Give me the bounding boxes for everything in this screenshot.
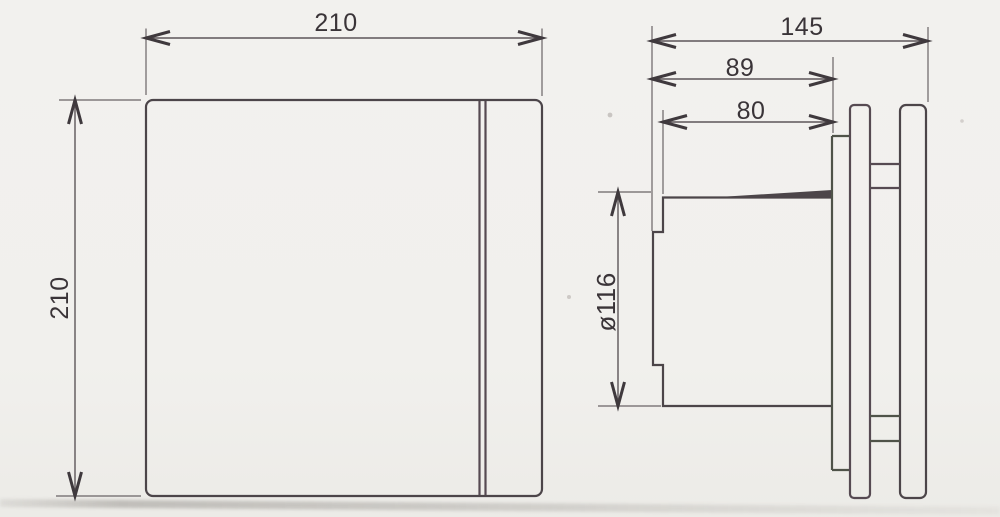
mounting-plate-outline	[850, 105, 870, 498]
front-width-label: 210	[314, 9, 357, 37]
scan-speck	[567, 295, 571, 299]
front-height-label: 210	[46, 276, 74, 319]
side-view-dimensions: 145 89 80 ø116	[591, 13, 928, 406]
fan-dimension-drawing: 210 210 145 89 80 ø116	[0, 0, 1000, 517]
spigot-length-label: 80	[737, 97, 766, 125]
front-panel-outline	[146, 100, 542, 496]
spigot-outline	[653, 198, 832, 407]
front-cover-side-outline	[900, 105, 926, 498]
spigot-taper-wedge	[719, 190, 832, 198]
body-depth-label: 89	[726, 54, 755, 82]
scan-specks	[567, 113, 964, 299]
total-depth-label: 145	[780, 13, 823, 41]
spigot-diameter-label: ø116	[591, 272, 621, 331]
body-back-edge	[832, 136, 850, 470]
dimension-drawing-canvas: 210 210 145 89 80 ø116	[0, 0, 1000, 517]
cover-clip-bottom	[870, 416, 900, 441]
scan-speck	[608, 113, 613, 118]
scan-speck	[960, 119, 964, 123]
side-view	[653, 105, 926, 498]
front-view	[146, 100, 542, 496]
front-view-dimensions: 210 210	[46, 9, 542, 496]
cover-clip-top	[870, 164, 900, 188]
